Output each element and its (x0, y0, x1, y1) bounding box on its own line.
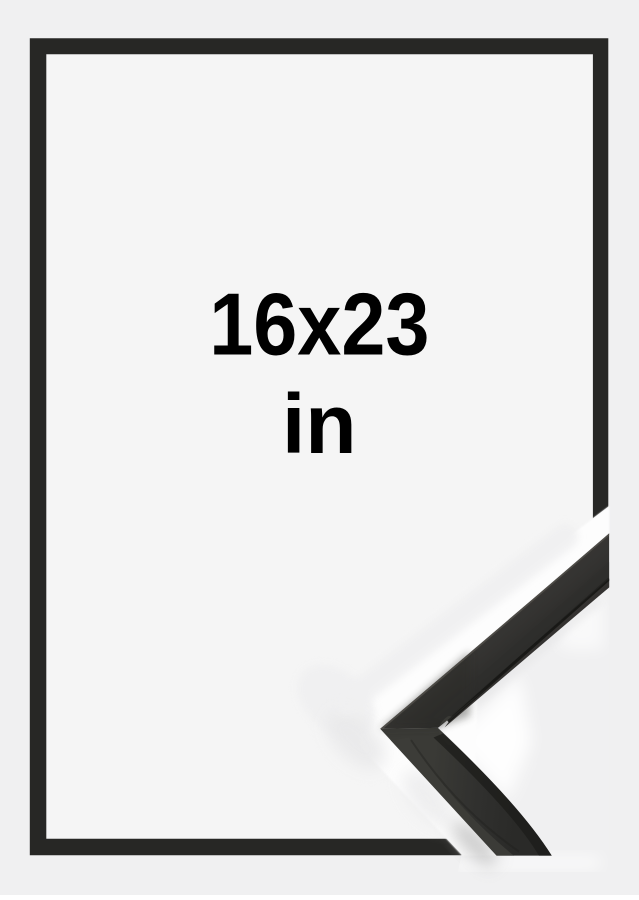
svg-text:16x23: 16x23 (209, 275, 429, 374)
svg-text:in: in (282, 377, 357, 471)
